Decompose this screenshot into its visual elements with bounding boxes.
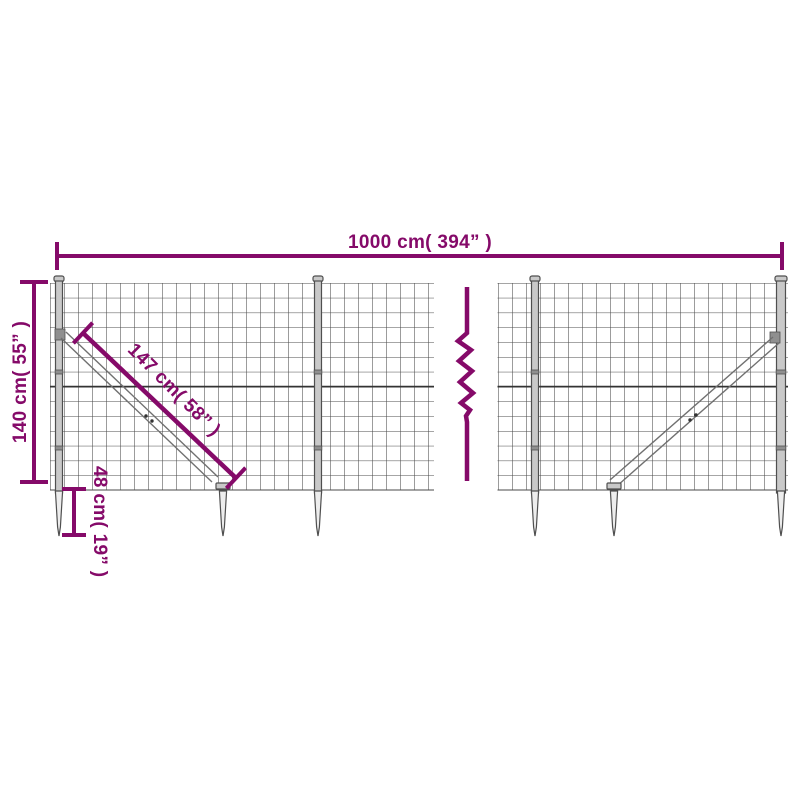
fence-mesh-right-panel — [498, 283, 789, 490]
brace-foot-plate — [607, 483, 621, 489]
fence-post — [775, 276, 787, 493]
brace-bolt — [694, 413, 697, 416]
brace-bolt — [144, 414, 147, 417]
ground-spike — [777, 491, 784, 536]
fence-post — [54, 276, 64, 493]
ground-spike — [531, 491, 538, 536]
ground-spike — [610, 491, 617, 536]
fence-post — [313, 276, 323, 493]
ground-spike — [219, 491, 226, 536]
ground-spike — [314, 491, 321, 536]
width-dimension: 1000 cm( 394” ) — [57, 232, 782, 270]
brace-bolt — [150, 419, 153, 422]
product-diagram: 1000 cm( 394” ) 140 cm( 55” ) 147 cm( 58… — [0, 0, 800, 800]
brace-bolt — [688, 418, 691, 421]
brace-clamp — [55, 329, 65, 340]
width-dimension-label: 1000 cm( 394” ) — [348, 232, 492, 253]
fence-mesh-left-panel — [50, 283, 434, 490]
spike-dimension-label: 48 cm( 19” ) — [89, 466, 110, 577]
break-symbol — [458, 287, 473, 481]
fence-post — [530, 276, 540, 493]
height-dimension: 140 cm( 55” ) — [10, 282, 48, 482]
height-dimension-label: 140 cm( 55” ) — [10, 321, 31, 443]
ground-spike — [55, 491, 62, 536]
